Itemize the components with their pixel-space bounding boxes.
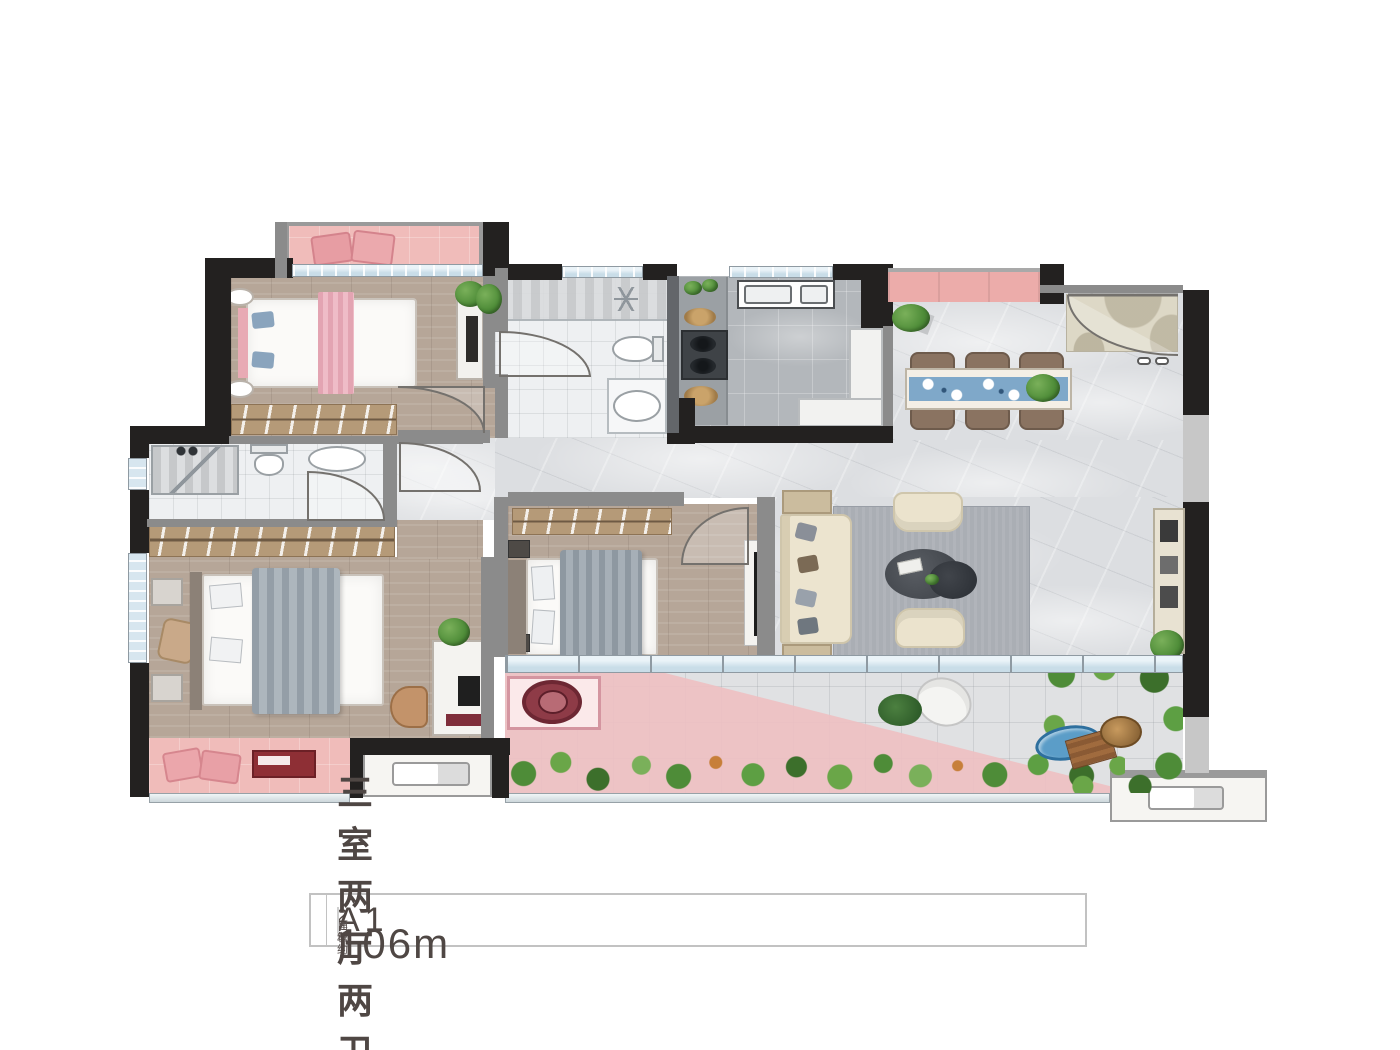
layout-label: 三室两厅两卫: [337, 764, 382, 1050]
master-pillow: [209, 583, 243, 610]
caption-bar: A1 建筑 面积约 106m2 三室两厅两卫: [309, 893, 1087, 947]
master-door-arc: [398, 441, 482, 493]
master-blanket: [252, 568, 340, 714]
plant: [925, 574, 939, 585]
armchair: [895, 608, 965, 648]
balcony-master-rail: [149, 793, 350, 803]
master-pillow: [209, 637, 243, 664]
floor-plan-page: A1 建筑 面积约 106m2 三室两厅两卫: [0, 0, 1400, 1050]
bathroom2-door-arc: [306, 470, 386, 522]
garden-table: [1100, 716, 1142, 748]
caption-left-cell: [311, 895, 327, 945]
wall: [495, 374, 508, 438]
bathroom2-toilet-tank: [250, 444, 288, 454]
platform-left-unit: [392, 762, 470, 786]
master-wardrobe: [149, 523, 395, 557]
bathroom1-door-arc: [498, 330, 592, 380]
bathroom1-shower-strip: [495, 277, 667, 321]
wall: [1183, 290, 1209, 415]
living-cabinet-appliance: [1160, 520, 1178, 542]
kitchen-sink-bowl: [744, 285, 792, 304]
master-nightstand: [151, 578, 183, 606]
plant: [702, 279, 718, 292]
bedroom3-nightstand: [508, 540, 530, 558]
wall: [130, 426, 231, 444]
living-cabinet-appliance: [1160, 556, 1178, 574]
kitchen-sink-bowl: [800, 285, 828, 304]
wall: [757, 497, 775, 657]
wall: [130, 444, 149, 458]
wall: [1185, 717, 1209, 773]
bedroom2-tv: [466, 316, 478, 362]
bathroom2-side-window: [128, 458, 147, 490]
bedroom3-pillow: [531, 609, 555, 644]
sofa-pillow: [797, 617, 819, 636]
bathroom2-toilet: [254, 454, 284, 476]
wall: [667, 276, 679, 433]
kitchen-burner: [690, 336, 716, 352]
master-balcony-cushion: [198, 749, 242, 784]
wall: [481, 557, 494, 738]
master-headboard: [190, 572, 202, 710]
bathroom1-drain-icon: [614, 287, 638, 311]
bathroom2-sink: [308, 446, 366, 472]
wall: [275, 222, 287, 278]
sofa-pillow: [797, 554, 819, 573]
armchair: [893, 492, 963, 532]
wall: [494, 497, 508, 657]
master-desk-chair: [390, 686, 428, 728]
bedroom2-pillow: [251, 351, 274, 369]
master-desk-shelf: [446, 714, 482, 726]
washing-machine-drum-inner: [538, 690, 568, 714]
bedroom3-blanket: [560, 550, 642, 662]
plant: [476, 284, 502, 314]
kitchen-window: [729, 266, 833, 278]
wall: [205, 258, 231, 442]
bedroom2-door-arc: [396, 385, 486, 435]
living-sliding-door: [505, 655, 1183, 673]
entry-shoes: [1137, 357, 1151, 365]
entry-door-arc: [1066, 293, 1180, 357]
wall: [1183, 502, 1209, 717]
dining-chair: [965, 408, 1010, 430]
balcony-plants-row: [505, 740, 1125, 796]
plant: [1026, 374, 1060, 402]
bathroom2-faucet: [172, 444, 202, 458]
sofa-side-table: [782, 490, 832, 514]
living-cabinet-appliance: [1160, 586, 1178, 608]
kitchen-counter-bottom: [798, 398, 883, 427]
wall: [1040, 264, 1064, 304]
master-balcony-keyboard-keys: [258, 756, 290, 765]
bedroom3-door-arc: [680, 506, 750, 566]
bedroom3-pillow: [531, 565, 555, 600]
dining-chair: [910, 408, 955, 430]
master-desk-monitor: [458, 676, 480, 706]
balcony2-cushion: [350, 230, 396, 267]
bedroom2-runner: [318, 292, 354, 394]
bathroom1-sink: [613, 390, 661, 422]
wall: [1040, 285, 1183, 293]
master-entry-floor: [397, 519, 483, 559]
bedroom2-headboard: [238, 308, 248, 378]
wall: [667, 426, 893, 443]
plant: [684, 281, 702, 295]
entry-pink-wall: [888, 268, 1040, 302]
bedroom3-wardrobe: [512, 508, 672, 535]
bathroom1-window: [562, 266, 643, 278]
entry-shoes: [1155, 357, 1169, 365]
bedroom2-pillow: [251, 311, 275, 329]
balcony2-cushion: [310, 231, 354, 266]
hall-floor: [495, 438, 1183, 498]
wall: [508, 492, 684, 506]
wall: [883, 326, 893, 426]
bedroom2-wardrobe: [231, 404, 397, 435]
bedroom2-balcony-window: [292, 264, 483, 277]
bathroom1-toilet: [612, 336, 654, 362]
dining-chair: [1019, 408, 1064, 430]
plant: [438, 618, 470, 646]
plant: [892, 304, 930, 332]
balcony-table: [878, 694, 922, 726]
balcony-main-rail: [505, 793, 1110, 803]
wall: [350, 738, 510, 755]
wall: [1183, 415, 1209, 502]
wall: [130, 663, 149, 797]
wall: [492, 738, 509, 798]
master-nightstand: [151, 674, 183, 702]
kitchen-burner: [690, 358, 716, 374]
bedroom3-headboard: [508, 560, 526, 654]
kitchen-dish: [684, 308, 716, 326]
master-side-window: [128, 553, 147, 663]
